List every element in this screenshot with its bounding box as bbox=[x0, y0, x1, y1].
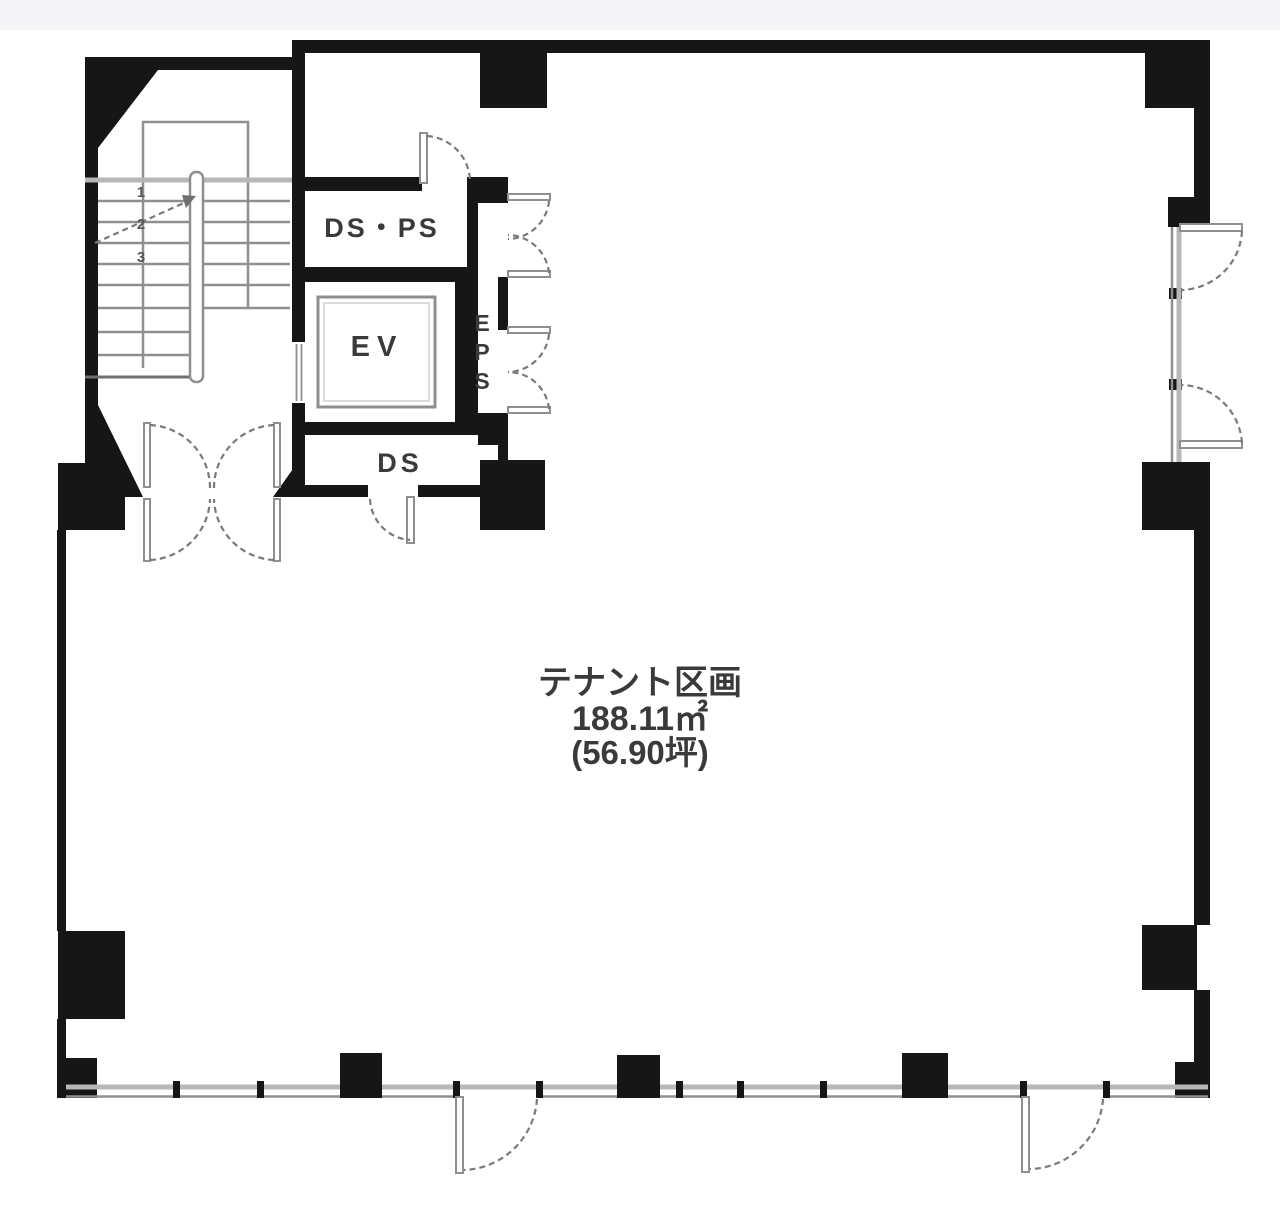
eps-door-upper bbox=[508, 194, 550, 277]
stair-step-number: 1 bbox=[137, 184, 145, 201]
floorplan-page: 1 2 3 bbox=[0, 0, 1280, 1228]
floor-plan-svg: 1 2 3 bbox=[0, 0, 1280, 1228]
dsps-access-door bbox=[420, 133, 470, 183]
south-door-right bbox=[1022, 1097, 1103, 1172]
staircase: 1 2 3 bbox=[85, 122, 292, 382]
tenant-name-label: テナント区画 bbox=[538, 664, 742, 702]
doors bbox=[144, 133, 1242, 1173]
ds-label: DS bbox=[377, 448, 423, 478]
ev-label: EV bbox=[351, 331, 404, 363]
ds-access-door bbox=[370, 497, 414, 543]
eps-door-lower bbox=[508, 327, 550, 413]
east-door-upper bbox=[1180, 224, 1242, 290]
stair-stringer bbox=[190, 172, 203, 382]
right-window-wall bbox=[1172, 227, 1179, 462]
tenant-area-sqm-label: 188.11㎡ bbox=[572, 699, 708, 738]
south-door-left bbox=[456, 1097, 537, 1173]
tenant-area-tsubo-label: (56.90坪) bbox=[571, 734, 709, 771]
elevator-sliding-door bbox=[297, 344, 302, 401]
eps-label-letter: E bbox=[474, 310, 489, 336]
eps-label-letter: S bbox=[474, 368, 489, 394]
eps-label: E P S bbox=[474, 310, 489, 394]
outer-walls bbox=[57, 40, 1210, 1098]
stairhall-double-swing-door bbox=[144, 423, 280, 561]
bottom-window-wall bbox=[66, 1053, 1208, 1098]
stair-step-number: 2 bbox=[137, 216, 145, 233]
east-door-lower bbox=[1180, 385, 1242, 448]
stair-step-number: 3 bbox=[137, 249, 145, 266]
dsps-label: DS・PS bbox=[324, 213, 440, 243]
tenant-area-label: テナント区画 188.11㎡ (56.90坪) bbox=[538, 664, 742, 771]
eps-label-letter: P bbox=[474, 339, 489, 365]
